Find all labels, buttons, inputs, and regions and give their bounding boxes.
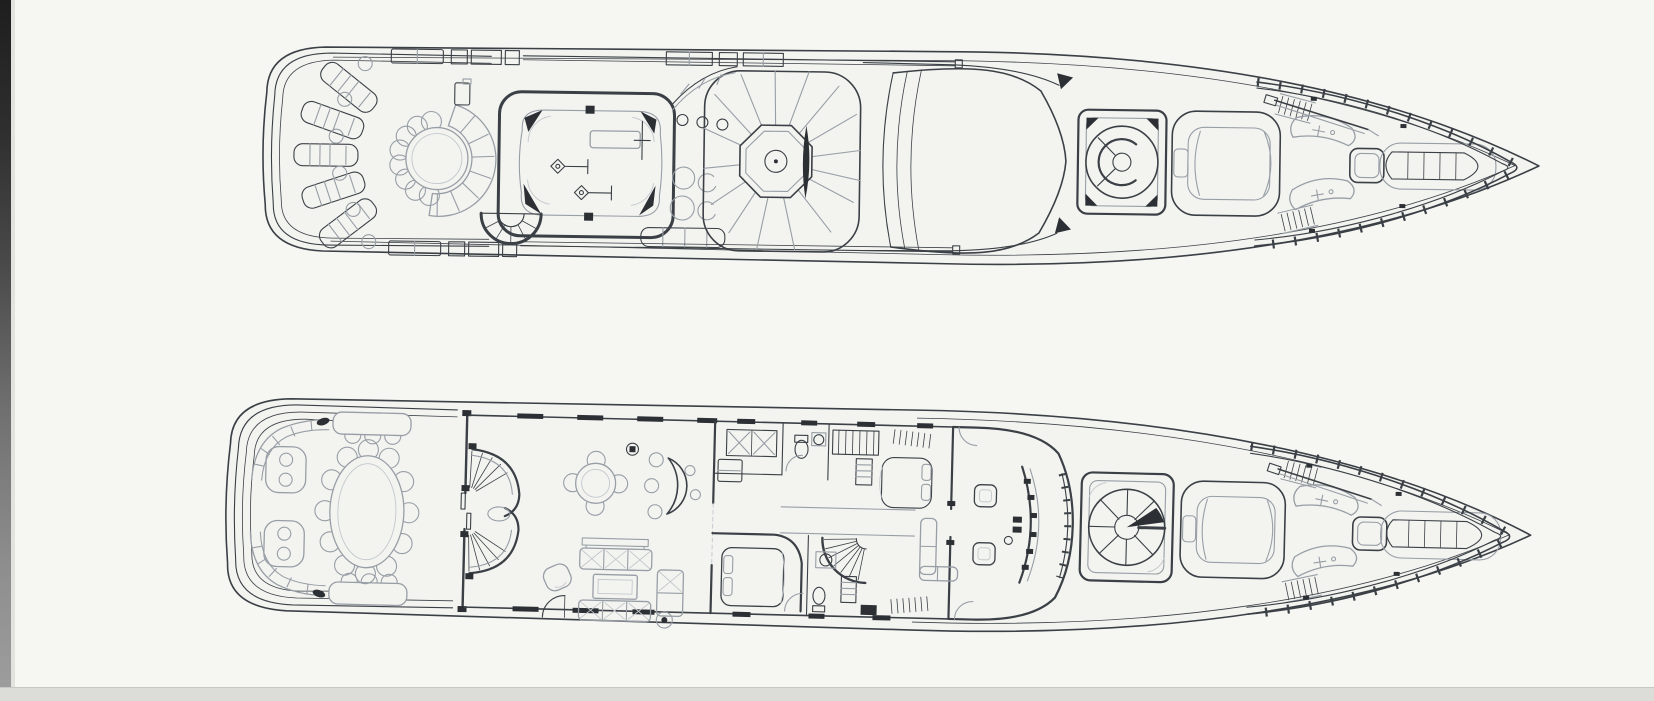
deck-plans-drawing: [0, 0, 1654, 701]
scanned-page: [0, 0, 1654, 701]
scan-bottom-band: [0, 687, 1654, 701]
round-table: [405, 127, 468, 190]
scan-page-edge: [0, 0, 11, 701]
main-deck-plan: [223, 393, 1533, 649]
scan-page-edge-shadow: [11, 0, 15, 701]
sun-deck-plan: [262, 42, 1541, 272]
spa-octagon: [739, 125, 812, 199]
